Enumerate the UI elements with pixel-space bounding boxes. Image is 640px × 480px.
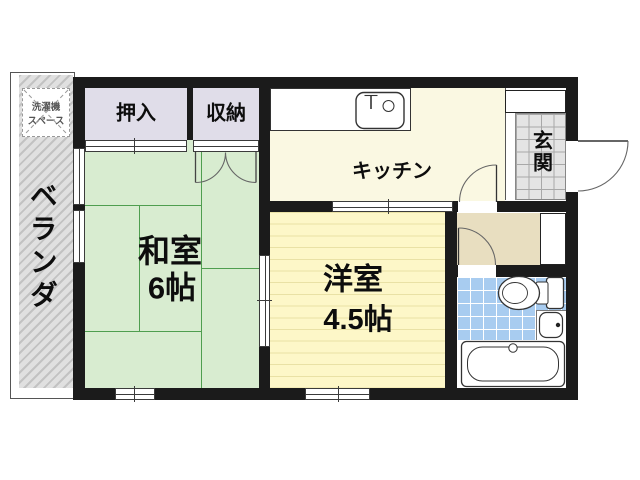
wall-genkan-washroom xyxy=(497,201,578,212)
washbasin-area xyxy=(536,310,566,340)
bathroom-door-opening xyxy=(458,265,496,277)
tick xyxy=(388,199,389,214)
tick xyxy=(257,300,272,301)
front-door-swing xyxy=(578,141,628,191)
balcony-window-lower xyxy=(73,210,85,263)
storage-label: 収納 xyxy=(206,104,246,125)
wall-closet-divider xyxy=(187,88,193,140)
wall-washroom-bathroom xyxy=(445,265,458,277)
front-door-opening xyxy=(566,141,578,192)
washitsu-youshitsu-sliding-door xyxy=(259,255,270,347)
youshitsu-label: 洋室 xyxy=(323,264,383,296)
tatami-line xyxy=(85,205,201,206)
wall-bottom xyxy=(73,388,115,400)
tatami-line xyxy=(201,268,259,269)
youshitsu-size: 4.5帖 xyxy=(323,305,392,335)
wall-bottom xyxy=(155,388,305,400)
tick xyxy=(338,386,339,402)
wall-left xyxy=(73,77,85,148)
wall-washitsu-kitchen xyxy=(259,88,270,255)
wall-washroom-bathroom xyxy=(496,265,578,277)
washroom-fixture-box xyxy=(540,213,566,265)
floor-plan: 洗濯機 スペース xyxy=(0,0,640,480)
kitchen-youshitsu-sliding-door xyxy=(332,201,453,212)
tick xyxy=(134,138,135,154)
balcony-label: ベランダ xyxy=(27,181,56,313)
wall-kitchen-youshitsu xyxy=(259,201,332,212)
wall-right xyxy=(566,192,578,400)
oshiire-label: 押入 xyxy=(116,104,156,125)
wall-right xyxy=(566,77,578,141)
washitsu-size: 6帖 xyxy=(148,273,196,306)
balcony-window-upper xyxy=(73,148,85,205)
genkan-label: 玄関 xyxy=(530,130,551,174)
kitchen-door-opening xyxy=(458,201,497,212)
youshitsu-floor xyxy=(270,212,445,388)
wall-left xyxy=(73,263,85,400)
washing-machine-space-label: 洗濯機 スペース xyxy=(23,89,69,136)
kitchen-label: キッチン xyxy=(352,162,432,183)
washitsu-label: 和室 xyxy=(138,235,202,269)
tick xyxy=(134,386,135,402)
kitchen-counter xyxy=(270,88,411,131)
wall-washitsu-youshitsu xyxy=(259,347,270,388)
washing-machine-space: 洗濯機 スペース xyxy=(22,88,70,137)
storage-door-opening xyxy=(193,140,259,152)
wall-bottom xyxy=(370,388,578,400)
bathtub-area xyxy=(457,340,566,388)
wall-youshitsu-bathroom xyxy=(445,212,457,388)
shoe-cabinet xyxy=(505,90,566,113)
oshiire-fusuma xyxy=(85,140,187,152)
washitsu-bottom-window xyxy=(115,388,155,400)
wall-top xyxy=(75,77,578,88)
tatami-line xyxy=(85,331,201,332)
